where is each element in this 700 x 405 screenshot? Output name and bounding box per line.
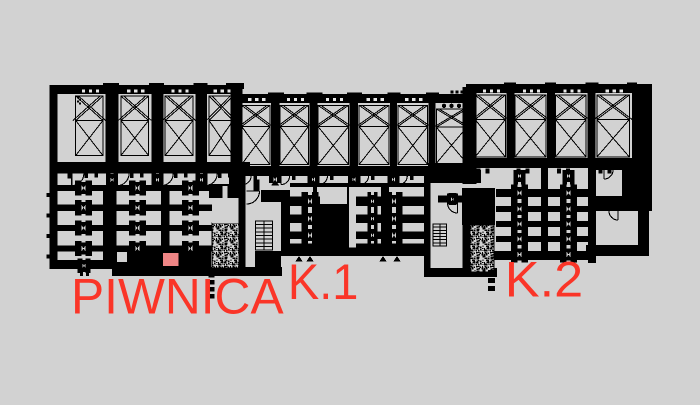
svg-text:K.2: K.2: [505, 252, 583, 308]
svg-text:PIWNICA: PIWNICA: [71, 269, 284, 325]
svg-text:K.1: K.1: [288, 254, 359, 310]
